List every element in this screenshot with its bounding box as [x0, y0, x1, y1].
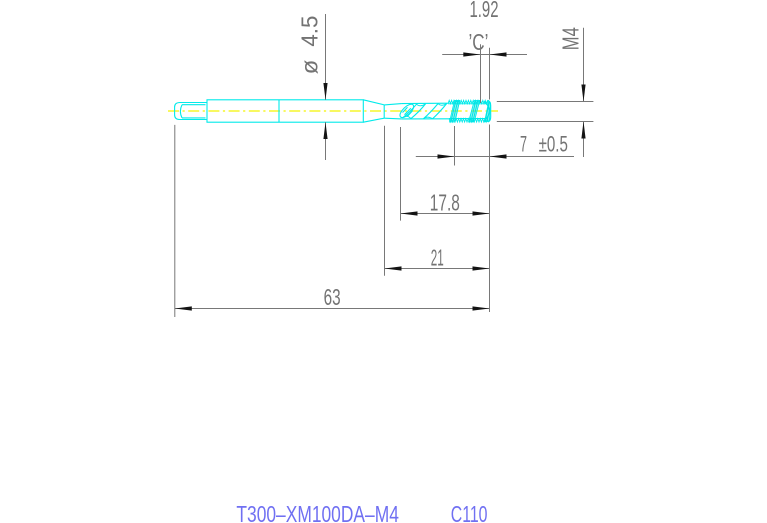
svg-text:1.92: 1.92	[470, 0, 499, 22]
svg-text:4.5: 4.5	[297, 16, 323, 47]
svg-text:M4: M4	[558, 27, 584, 50]
svg-text:17.8: 17.8	[430, 189, 460, 215]
svg-text:±0.5: ±0.5	[539, 132, 568, 157]
svg-text:63: 63	[324, 284, 341, 310]
svg-text:ø: ø	[297, 60, 323, 75]
svg-text:21: 21	[431, 244, 444, 270]
svg-text:7: 7	[520, 132, 527, 157]
svg-text:T300–XM100DA–M4: T300–XM100DA–M4	[236, 501, 399, 523]
svg-text:’C’: ’C’	[469, 29, 489, 55]
svg-text:C110: C110	[451, 501, 488, 523]
